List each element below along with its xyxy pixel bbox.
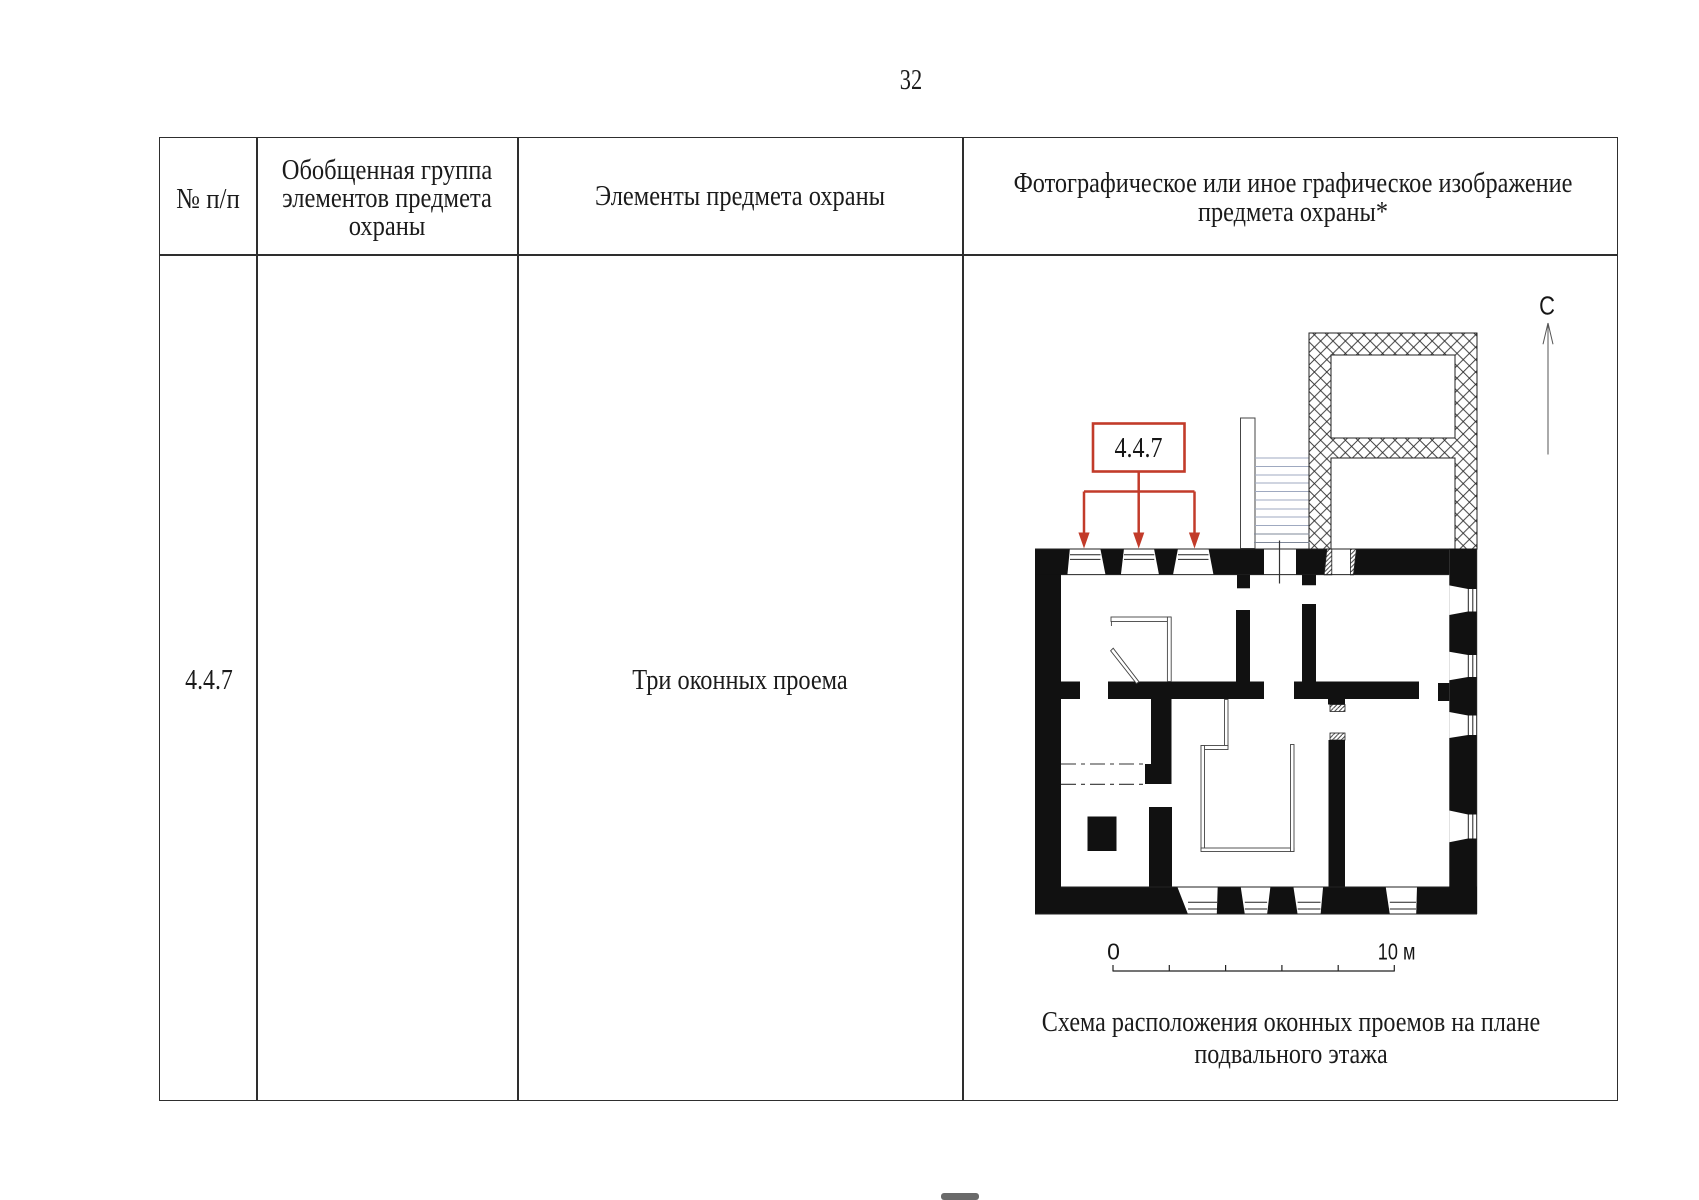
svg-text:10 м: 10 м (1378, 939, 1416, 965)
svg-text:4.4.7: 4.4.7 (1115, 432, 1163, 464)
svg-text:С: С (1539, 291, 1555, 321)
svg-text:0: 0 (1107, 939, 1120, 965)
